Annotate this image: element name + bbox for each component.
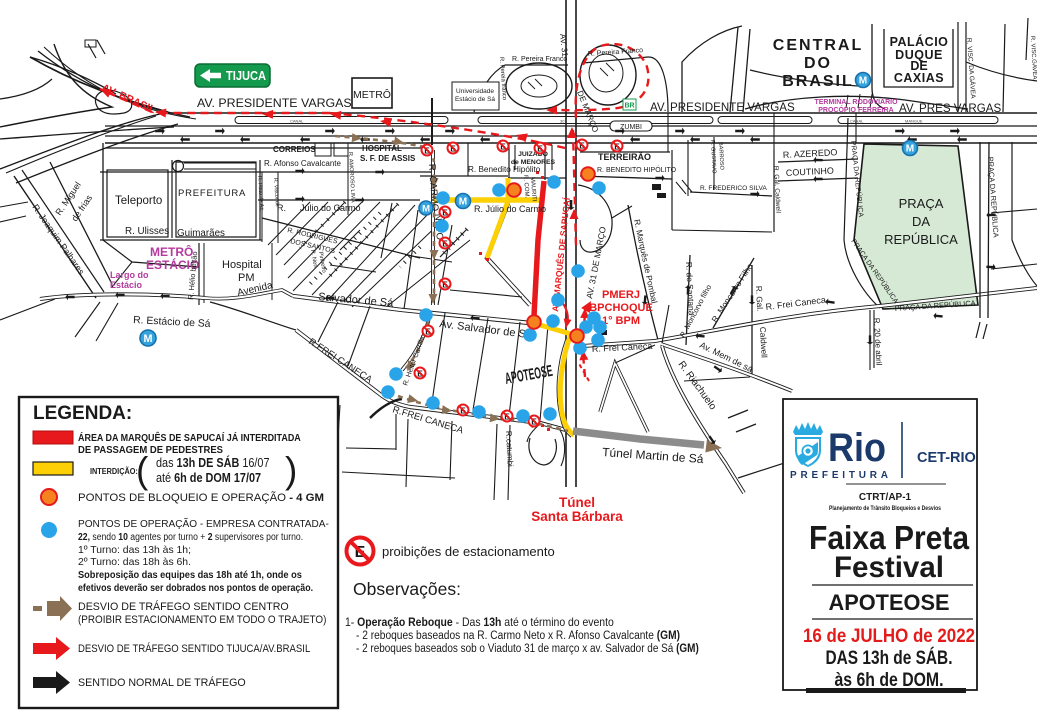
- svg-text:R.catumbi: R.catumbi: [504, 431, 515, 468]
- svg-text:16 de JULHO de 2022: 16 de JULHO de 2022: [803, 625, 975, 647]
- svg-text:PONTOS DE OPERAÇÃO - EMPRESA C: PONTOS DE OPERAÇÃO - EMPRESA CONTRATADA-: [78, 517, 329, 530]
- svg-text:PREFEITURA: PREFEITURA: [178, 188, 246, 199]
- svg-text:- 2 reboques baseados na R. Ca: - 2 reboques baseados na R. Carmo Neto x…: [356, 629, 680, 642]
- svg-text:METRÔ: METRÔ: [150, 244, 193, 259]
- svg-text:CAXIAS: CAXIAS: [894, 71, 944, 85]
- svg-text:R. BENEDITO HIPÓLITO: R. BENEDITO HIPÓLITO: [597, 165, 677, 174]
- svg-text:PROCÓPIO FERREIRA: PROCÓPIO FERREIRA: [818, 105, 893, 114]
- svg-text:1° BPM: 1° BPM: [602, 315, 640, 327]
- svg-text:1º Turno: das 13h às 1h;: 1º Turno: das 13h às 1h;: [78, 545, 191, 556]
- svg-text:CET-RIO: CET-RIO: [917, 450, 976, 466]
- svg-text:M: M: [859, 76, 867, 87]
- svg-text:CORREIOS: CORREIOS: [273, 145, 316, 154]
- svg-text:S. F. DE ASSIS: S. F. DE ASSIS: [360, 154, 416, 163]
- svg-text:Santa Bárbara: Santa Bárbara: [531, 509, 623, 524]
- svg-text:CANAL: CANAL: [850, 119, 864, 124]
- svg-text:Estácio de Sá: Estácio de Sá: [455, 96, 495, 103]
- svg-text:DAS 13h de SÁB.: DAS 13h de SÁB.: [826, 646, 953, 669]
- svg-text:Júlio do Carmo: Júlio do Carmo: [300, 203, 361, 213]
- svg-text:das 13h DE SÁB 16/07: das 13h DE SÁB 16/07: [156, 454, 270, 470]
- svg-text:M: M: [906, 144, 914, 155]
- svg-text:(PROIBIR ESTACIONAMENTO EM TOD: (PROIBIR ESTACIONAMENTO EM TODO O TRAJET…: [78, 615, 326, 627]
- svg-text:): ): [285, 450, 297, 491]
- svg-text:PM: PM: [238, 272, 255, 284]
- svg-text:TIJUCA: TIJUCA: [226, 69, 266, 83]
- svg-text:CENTRAL: CENTRAL: [773, 37, 863, 54]
- svg-text:M: M: [144, 333, 153, 345]
- svg-text:Estácio: Estácio: [110, 280, 143, 290]
- svg-text:DO: DO: [804, 55, 832, 72]
- svg-text:AV. PRESIDENTE VARGAS: AV. PRESIDENTE VARGAS: [650, 101, 795, 114]
- svg-text:SENTIDO NORMAL DE TRÁFEGO: SENTIDO NORMAL DE TRÁFEGO: [78, 676, 246, 689]
- svg-text:22, sendo 10 agentes por turno: 22, sendo 10 agentes por turno + 2 super…: [78, 531, 303, 543]
- svg-text:AV. PRES VARGAS: AV. PRES VARGAS: [899, 102, 1002, 115]
- svg-text:BR: BR: [624, 103, 634, 110]
- svg-text:TERREIRÃO: TERREIRÃO: [598, 152, 651, 162]
- svg-text:às 6h de DOM.: às 6h de DOM.: [835, 669, 944, 691]
- svg-text:Universidade: Universidade: [456, 88, 494, 95]
- svg-text:Teleporto: Teleporto: [115, 195, 162, 207]
- svg-text:REPÚBLICA: REPÚBLICA: [884, 232, 958, 247]
- svg-text:até 6h de DOM 17/07: até 6h de DOM 17/07: [156, 470, 261, 485]
- svg-text:R. Pereira Franco: R. Pereira Franco: [512, 56, 567, 63]
- svg-text:TERMINAL RODOVIÁRIO: TERMINAL RODOVIÁRIO: [814, 97, 898, 106]
- svg-text:proibições de estacionamento: proibições de estacionamento: [382, 544, 555, 559]
- svg-text:CANAL: CANAL: [290, 119, 304, 124]
- svg-text:BPCHOQUE: BPCHOQUE: [589, 302, 653, 314]
- svg-text:R. FREDERICO SILVA: R. FREDERICO SILVA: [700, 185, 767, 192]
- svg-text:Túnel: Túnel: [559, 495, 595, 510]
- svg-text:ÁREA DA MARQUÊS DE SAPUCAÍ JÁ: ÁREA DA MARQUÊS DE SAPUCAÍ JÁ INTERDITAD…: [78, 431, 301, 444]
- svg-text:LEGENDA:: LEGENDA:: [33, 403, 132, 424]
- svg-text:Guimarães: Guimarães: [177, 228, 225, 239]
- svg-text:DA: DA: [912, 214, 930, 229]
- svg-text:- 2 reboques baseados sob o Vi: - 2 reboques baseados sob o Viaduto 31 d…: [356, 642, 699, 655]
- svg-text:METRÔ: METRÔ: [353, 88, 391, 101]
- svg-text:M: M: [422, 203, 430, 214]
- svg-text:DESVIO DE TRÁFEGO SENTIDO CEN: DESVIO DE TRÁFEGO SENTIDO CENTRO: [78, 600, 289, 613]
- svg-text:PMERJ: PMERJ: [602, 289, 640, 301]
- svg-text:Sobreposição das equipes das 1: Sobreposição das equipes das 18h até 1h,…: [78, 570, 302, 582]
- svg-text:PONTOS DE BLOQUEIO E OPERAÇÃO: PONTOS DE BLOQUEIO E OPERAÇÃO - 4 GM: [78, 491, 324, 504]
- svg-text:Observações:: Observações:: [353, 579, 461, 599]
- svg-text:R. Gal.: R. Gal.: [754, 286, 764, 312]
- svg-text:Hospital: Hospital: [222, 259, 262, 271]
- svg-text:MANGUE: MANGUE: [905, 119, 923, 124]
- svg-text:R. Afonso Cavalcante: R. Afonso Cavalcante: [264, 159, 341, 168]
- svg-text:APOTEOSE: APOTEOSE: [829, 590, 950, 615]
- svg-text:PRAÇA: PRAÇA: [899, 196, 944, 211]
- svg-text:1- Operação Reboque - Das 13h: 1- Operação Reboque - Das 13h até o térm…: [345, 617, 614, 630]
- svg-text:INTERDIÇÃO:: INTERDIÇÃO:: [90, 466, 138, 476]
- svg-text:R. Ulisses: R. Ulisses: [125, 226, 169, 237]
- svg-text:HOSPITAL: HOSPITAL: [362, 144, 402, 153]
- svg-text:PALÁCIO: PALÁCIO: [890, 34, 949, 49]
- svg-text:R. Benedito Hipólito: R. Benedito Hipólito: [468, 165, 541, 174]
- svg-text:30: 30: [560, 119, 565, 124]
- svg-text:(: (: [136, 450, 149, 491]
- svg-text:Largo do: Largo do: [110, 270, 149, 280]
- svg-text:efetivos deverão ser dobrados: efetivos deverão ser dobrados nos pontos…: [78, 582, 313, 594]
- svg-text:CTRT/AP-1: CTRT/AP-1: [859, 492, 912, 503]
- svg-text:Planejamento de Trânsito Bloqu: Planejamento de Trânsito Bloqueios e Des…: [829, 505, 941, 512]
- svg-text:Festival: Festival: [834, 551, 944, 584]
- svg-text:M: M: [459, 197, 467, 208]
- svg-text:Rio: Rio: [828, 426, 886, 470]
- svg-text:Caldwell: Caldwell: [758, 327, 769, 359]
- svg-text:2º Turno: das 18h às 6h.: 2º Turno: das 18h às 6h.: [78, 557, 191, 568]
- svg-text:BRASIL: BRASIL: [782, 73, 854, 90]
- svg-text:AV. PRESIDENTE VARGAS: AV. PRESIDENTE VARGAS: [197, 96, 352, 110]
- svg-text:DESVIO DE TRÁFEGO SENTIDO TIJ: DESVIO DE TRÁFEGO SENTIDO TIJUCA/AV.BRAS…: [78, 641, 311, 655]
- svg-text:R. Júlio do Carmo: R. Júlio do Carmo: [474, 204, 546, 214]
